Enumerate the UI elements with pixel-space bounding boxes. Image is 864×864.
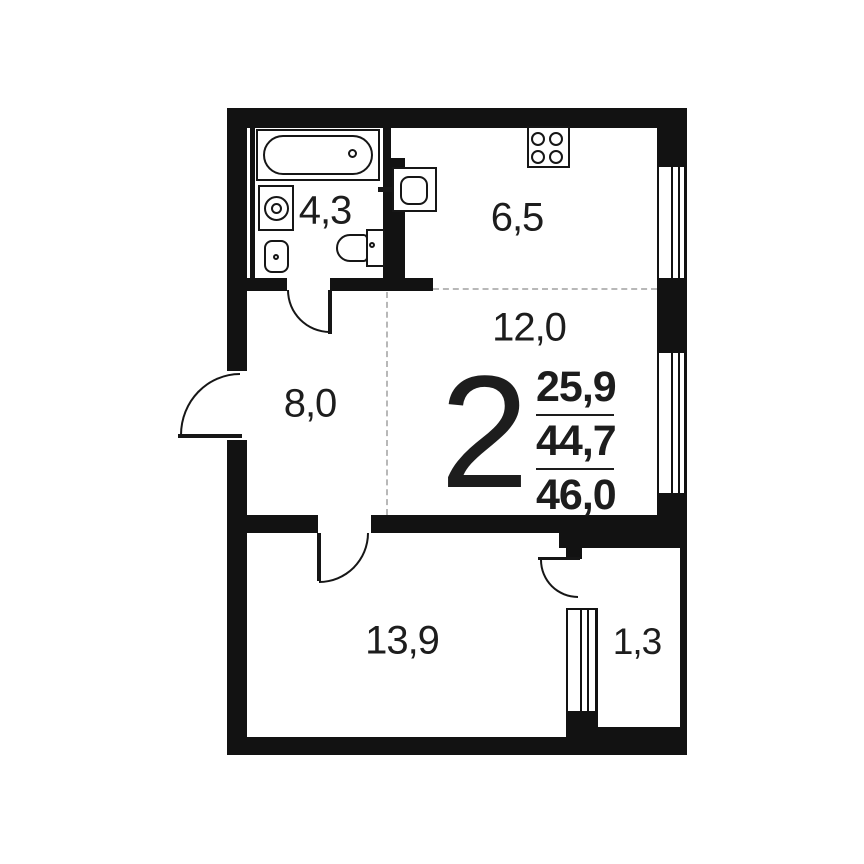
bedroom-door-swing-icon [319, 533, 369, 583]
wall-right-between-windows [657, 278, 687, 353]
window-living-room-icon [657, 353, 687, 493]
area-label-hallway: 8,0 [284, 382, 337, 427]
wall-left-lower [227, 440, 247, 755]
summary-living-area: 25,9 [536, 364, 614, 413]
bathroom-door-swing-icon [287, 290, 330, 333]
wall-balcony-bottom [566, 727, 687, 755]
window-kitchen-icon [657, 167, 687, 278]
stove-burner [549, 150, 563, 164]
window-glass-line [678, 167, 680, 278]
wall-left-upper [227, 108, 247, 371]
area-label-balcony: 1,3 [613, 621, 661, 663]
zone-divider-hall-living [386, 292, 388, 515]
entrance-door-swing-icon [180, 373, 240, 435]
wall-top [227, 108, 687, 128]
washing-machine-drum-inner [271, 203, 282, 214]
toilet-icon [336, 234, 368, 262]
area-label-bedroom: 13,9 [365, 619, 439, 664]
kitchen-sink-basin [400, 176, 428, 205]
area-label-bathroom: 4,3 [299, 189, 352, 234]
wall-bathroom-bottom-left [247, 278, 287, 291]
balcony-door-swing-icon [540, 560, 578, 598]
wall-balcony-right [680, 548, 687, 728]
wall-bathroom-shaft-line [250, 126, 255, 278]
wall-bathroom-bottom-right [330, 278, 383, 291]
toilet-button [369, 242, 375, 248]
summary-area-without-balcony: 44,7 [536, 418, 614, 467]
wall-niche [391, 128, 405, 158]
window-glass-line [580, 610, 582, 711]
window-balcony-icon [566, 608, 598, 713]
wall-right-upper [657, 108, 687, 167]
toilet-tank [366, 229, 385, 267]
stove-burner [531, 150, 545, 164]
wall-bedroom-top-left [247, 515, 318, 533]
stove-burner [549, 132, 563, 146]
rooms-count: 2 [440, 352, 525, 512]
area-summary: 25,9 44,7 46,0 [536, 364, 614, 521]
window-glass-line [678, 353, 680, 493]
bathtub-drain [348, 149, 357, 158]
stove-burner [531, 132, 545, 146]
zone-divider-kitchen-living [433, 288, 657, 290]
summary-divider [536, 414, 614, 416]
summary-divider [536, 468, 614, 470]
window-glass-line [587, 610, 589, 711]
window-glass-line [671, 167, 673, 278]
wall-below-balcony-window [566, 713, 598, 728]
floor-plan: 4,3 6,5 12,0 8,0 13,9 1,3 2 25,9 44,7 46… [0, 0, 864, 864]
summary-total-area: 46,0 [536, 472, 614, 521]
area-label-kitchen: 6,5 [491, 196, 544, 241]
wall-hallway-top [383, 278, 433, 291]
window-glass-line [671, 353, 673, 493]
bathroom-sink-drain [273, 254, 279, 260]
